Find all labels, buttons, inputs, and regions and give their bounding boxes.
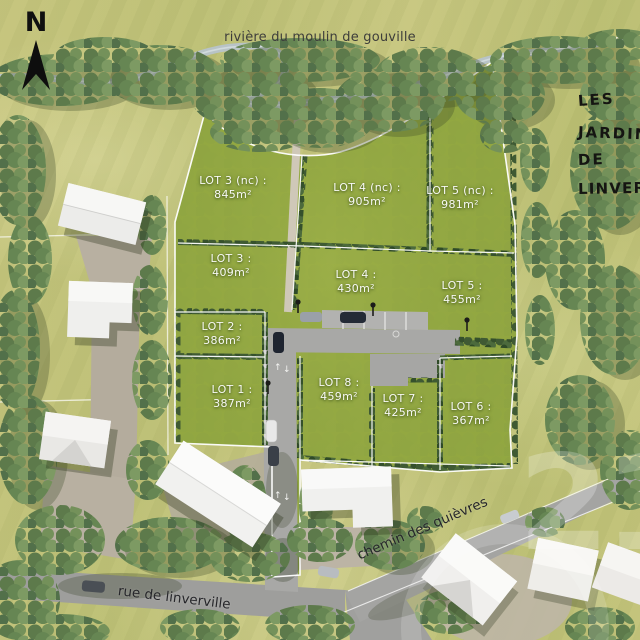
north-compass: N xyxy=(14,8,62,100)
svg-text:↑: ↑ xyxy=(274,491,282,501)
title-line: DE xyxy=(578,151,579,169)
svg-text:↓: ↓ xyxy=(283,493,291,503)
lot-label-3: LOT 3 :409m² xyxy=(211,252,252,279)
lot-label-4: LOT 4 :430m² xyxy=(336,268,377,295)
lot-label-6: LOT 6 :367m² xyxy=(451,400,492,427)
svg-text:↓: ↓ xyxy=(283,365,291,375)
lot-label-3nc: LOT 3 (nc) :845m² xyxy=(199,174,267,201)
north-arrow-icon xyxy=(14,38,62,96)
river-label: rivière du moulin de gouville xyxy=(224,30,416,45)
title-line: LES xyxy=(577,92,578,110)
lot-label-2: LOT 2 :386m² xyxy=(202,320,243,347)
lot-label-7: LOT 7 :425m² xyxy=(383,392,424,419)
lot-label-8: LOT 8 :459m² xyxy=(319,376,360,403)
lot-label-5: LOT 5 :455m² xyxy=(442,279,483,306)
site-plan-map: ↑↓ ↑↓ xyxy=(0,0,640,640)
lot-label-4nc: LOT 4 (nc) :905m² xyxy=(333,181,401,208)
watermark: 21 xyxy=(518,438,640,570)
svg-text:↑: ↑ xyxy=(274,363,282,373)
north-label: N xyxy=(14,8,58,38)
title-line: JARDINS xyxy=(578,123,579,141)
lot-label-1: LOT 1 :387m² xyxy=(212,383,253,410)
lot-label-5nc: LOT 5 (nc) :981m² xyxy=(426,184,494,211)
